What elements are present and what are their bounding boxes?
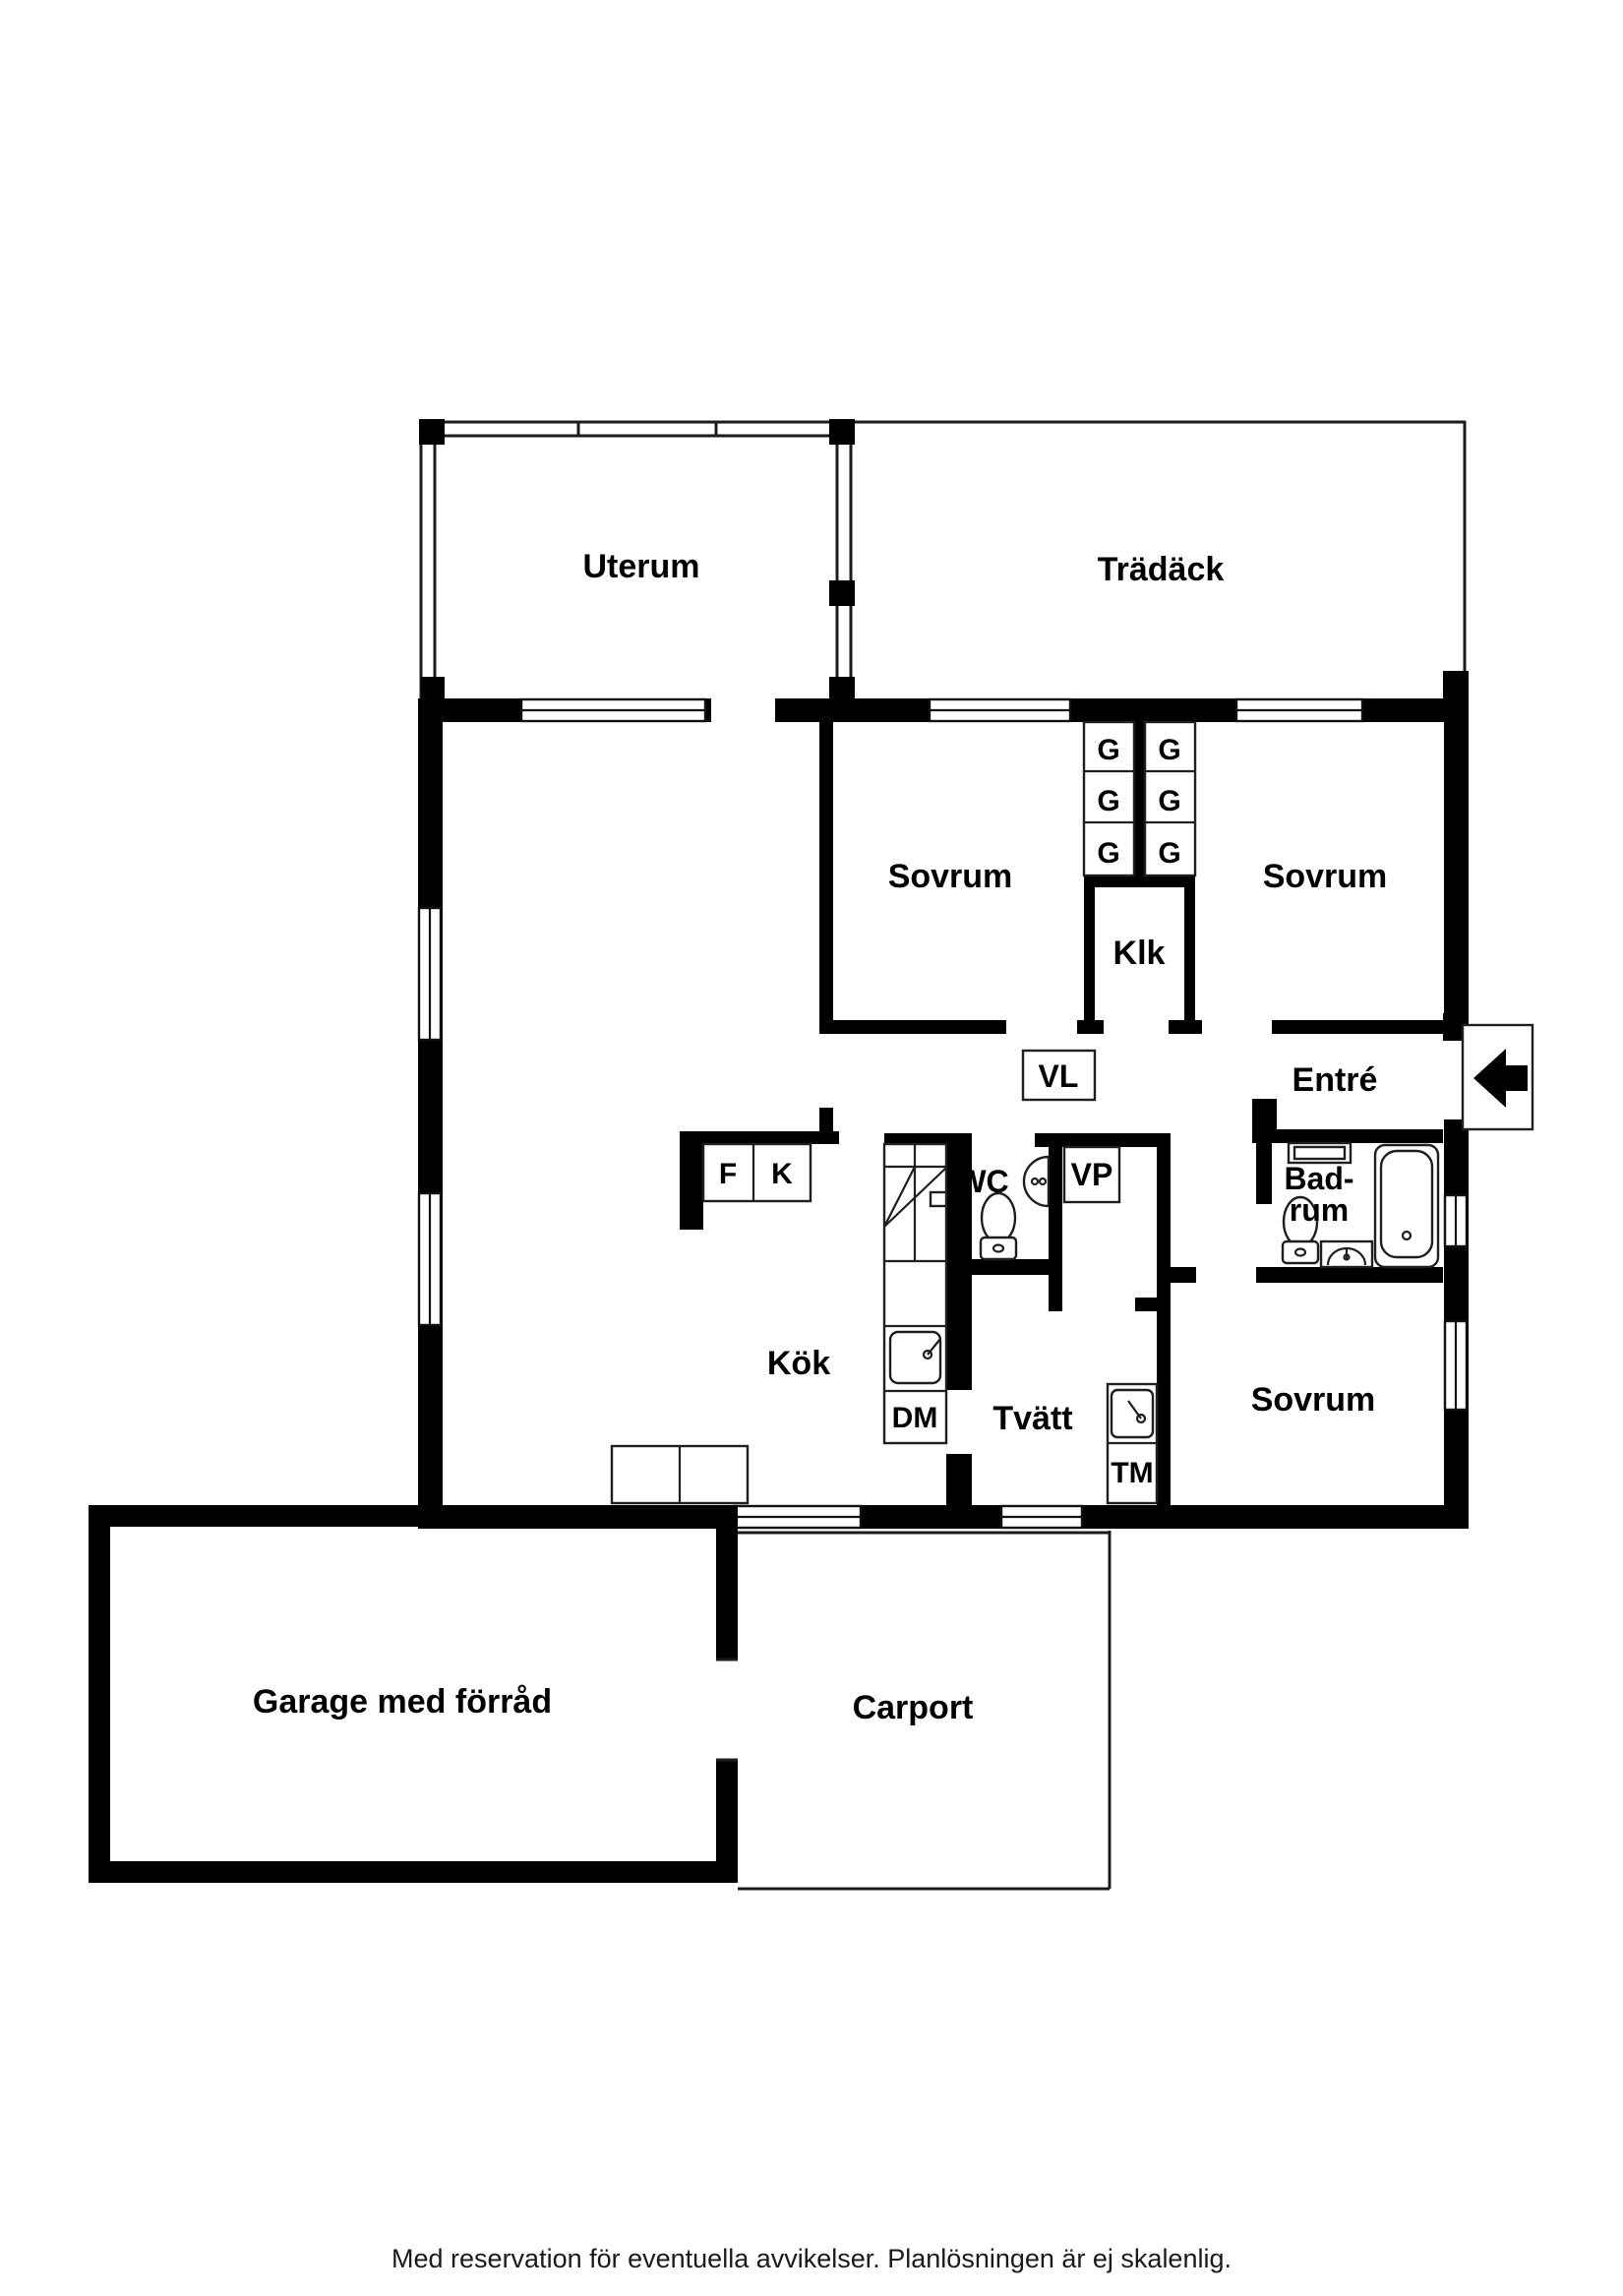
floor-plan-drawing: Uterum Trädäck Sovrum Sovrum Sovrum Klk … [0, 0, 1623, 2296]
room-label-klk: Klk [1113, 935, 1166, 972]
wardrobe-label-4: G [1158, 734, 1180, 766]
room-label-badrum-line2: rum [1290, 1192, 1349, 1228]
badrum-shelf-icon [1289, 1143, 1351, 1163]
wc-toilet-icon [981, 1193, 1016, 1259]
wc-sink-icon [1024, 1157, 1049, 1206]
room-label-tradack: Trädäck [1098, 551, 1225, 588]
window-top-sovrum-right [1236, 699, 1362, 721]
window-top-sovrum-left [930, 699, 1070, 721]
kitchen-sink-icon [890, 1332, 940, 1383]
fixture-label-dishwasher: DM [892, 1402, 938, 1434]
room-label-badrum-line1: Bad- [1284, 1161, 1353, 1196]
wardrobe-label-3: G [1097, 837, 1119, 870]
room-label-sovrum-right: Sovrum [1263, 858, 1388, 895]
sideboard [612, 1446, 748, 1503]
room-label-sovrum-left: Sovrum [888, 858, 1013, 895]
fixture-label-fridge: F [719, 1158, 737, 1190]
room-label-garage: Garage med förråd [253, 1683, 552, 1721]
fixture-label-washing-machine: TM [1111, 1457, 1153, 1489]
room-label-kok: Kök [767, 1345, 830, 1382]
room-label-tvatt: Tvätt [992, 1400, 1072, 1437]
fixture-label-vl: VL [1039, 1058, 1079, 1094]
opening-to-uterum [711, 697, 775, 723]
wardrobe-label-5: G [1158, 785, 1180, 817]
tradack-corner-post [1443, 671, 1469, 700]
fixture-label-vp: VP [1071, 1157, 1113, 1192]
room-label-uterum: Uterum [582, 548, 699, 585]
disclaimer-text: Med reservation för eventuella avvikelse… [391, 2244, 1232, 2273]
kitchen-counter [884, 1144, 946, 1443]
window-left-2 [419, 1193, 441, 1325]
window-bottom-right [1001, 1506, 1082, 1528]
wardrobe-label-6: G [1158, 837, 1180, 870]
room-label-entre: Entré [1292, 1061, 1378, 1099]
window-right-badrum [1445, 1195, 1467, 1246]
window-right-sovrum [1445, 1321, 1467, 1410]
window-top-uterum [521, 699, 705, 721]
room-label-wc: WC [956, 1164, 1008, 1199]
window-bottom-left [734, 1506, 861, 1528]
laundry-sink-icon [1112, 1390, 1153, 1437]
room-label-carport: Carport [853, 1689, 974, 1726]
wardrobe-label-1: G [1097, 734, 1119, 766]
fixture-label-freezer: K [771, 1158, 793, 1190]
bathtub-icon [1375, 1145, 1438, 1267]
wardrobe-label-2: G [1097, 785, 1119, 817]
window-left-1 [419, 908, 441, 1040]
badrum-sink-icon [1321, 1241, 1372, 1267]
floor-plan-page: Uterum Trädäck Sovrum Sovrum Sovrum Klk … [0, 0, 1623, 2296]
room-label-sovrum-bottom: Sovrum [1251, 1381, 1376, 1419]
